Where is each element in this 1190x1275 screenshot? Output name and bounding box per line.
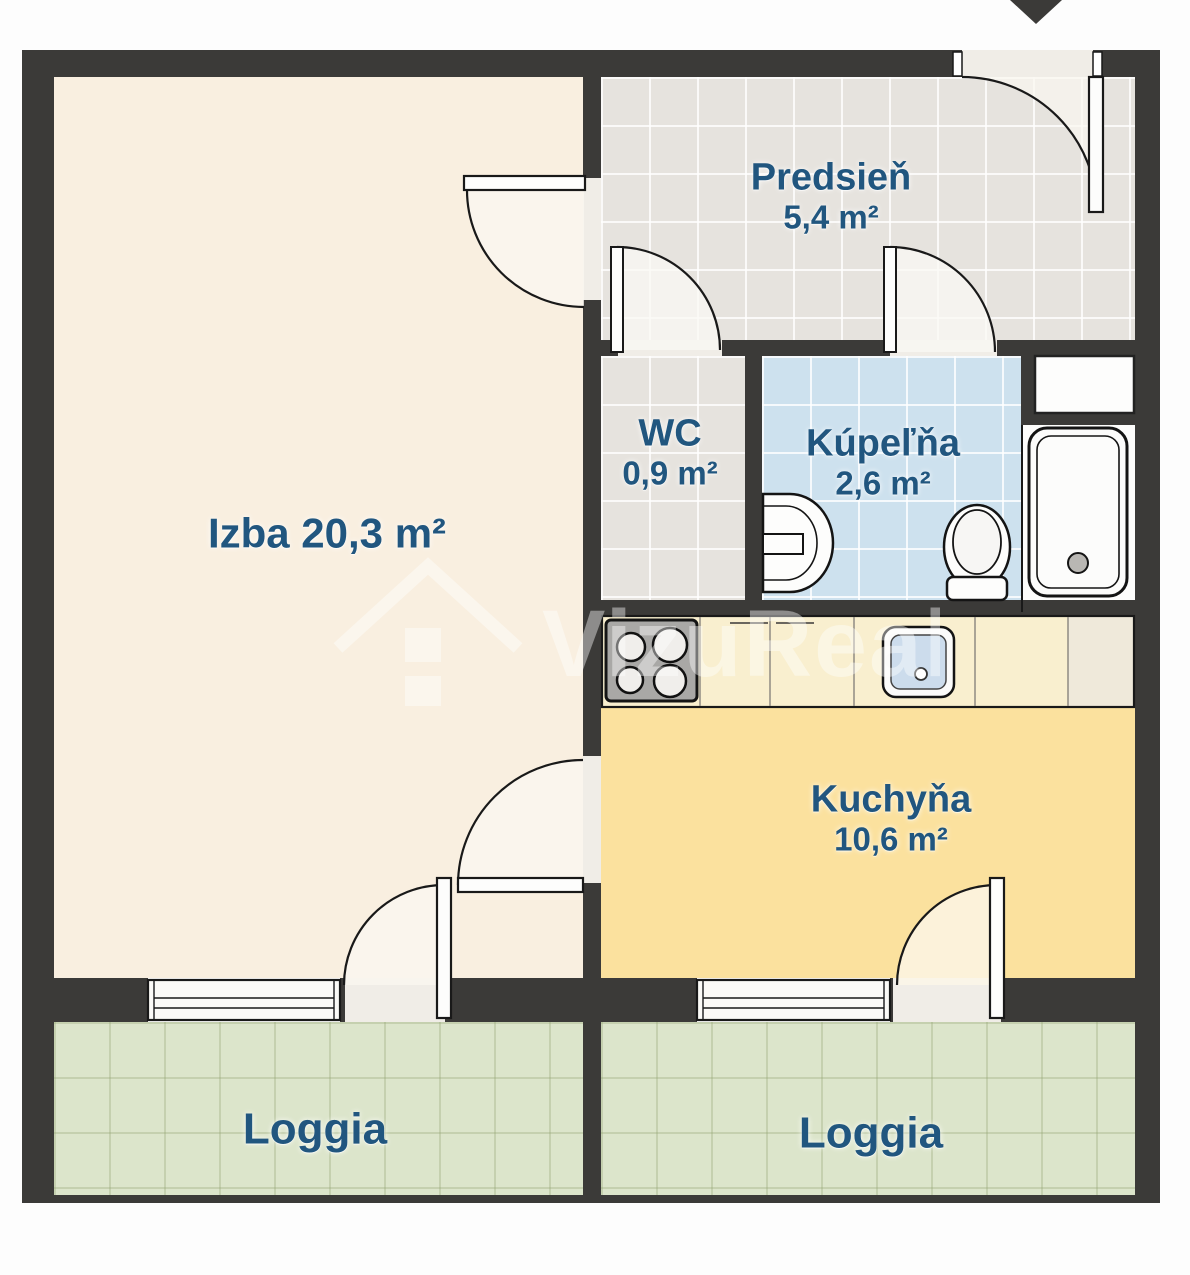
window-izba-loggia bbox=[148, 980, 340, 1020]
wall-under-shaft bbox=[1021, 413, 1135, 425]
kuchyna-name: Kuchyňa bbox=[811, 778, 971, 821]
wall-izba-hall-2 bbox=[583, 300, 601, 756]
wc-name: WC bbox=[622, 412, 717, 455]
wall-wc-bath bbox=[745, 356, 762, 600]
bathtub-nook bbox=[1023, 425, 1135, 612]
wall-hall-bottom-1 bbox=[601, 340, 618, 356]
utility-shaft bbox=[1035, 356, 1134, 413]
kitchen-counter-area bbox=[601, 615, 1135, 708]
loggia-right-door-opening bbox=[893, 978, 1001, 1022]
kuchyna-area: 10,6 m² bbox=[811, 821, 971, 858]
wall-top-left bbox=[22, 50, 962, 77]
loggia-front-rail bbox=[22, 1195, 1160, 1203]
kupelna-area: 2,6 m² bbox=[806, 465, 960, 502]
wall-bottom-6 bbox=[1001, 978, 1135, 1022]
wall-bottom-3 bbox=[445, 978, 583, 1022]
wall-izba-kitchen bbox=[583, 883, 601, 978]
label-predsien: Predsieň 5,4 m² bbox=[751, 156, 912, 236]
entrance-opening bbox=[962, 50, 1093, 77]
wall-izba-hall-1 bbox=[583, 77, 601, 178]
window-kitchen-loggia bbox=[697, 980, 890, 1020]
wall-left bbox=[22, 50, 54, 1203]
label-kupelna: Kúpeľňa 2,6 m² bbox=[806, 422, 960, 502]
izba-door-opening bbox=[583, 178, 601, 300]
entrance-arrow-icon bbox=[1010, 0, 1062, 24]
wall-right bbox=[1135, 50, 1160, 1203]
label-wc: WC 0,9 m² bbox=[622, 412, 717, 492]
predsien-name: Predsieň bbox=[751, 156, 912, 199]
wall-hall-bottom-2 bbox=[722, 340, 890, 356]
wall-bottom-1 bbox=[54, 978, 148, 1022]
label-izba: Izba 20,3 m² bbox=[208, 509, 446, 556]
label-kuchyna: Kuchyňa 10,6 m² bbox=[811, 778, 971, 858]
loggia-left-door-opening bbox=[345, 978, 445, 1022]
wall-loggia-divider bbox=[583, 978, 601, 1195]
bath-door-opening bbox=[890, 340, 997, 356]
floor-plan: VizuReal Predsieň 5,4 m² WC 0,9 m² Kúpeľ… bbox=[0, 0, 1190, 1275]
wc-door-opening bbox=[618, 340, 722, 356]
wall-hall-bottom-3 bbox=[997, 340, 1135, 356]
label-loggia-right: Loggia bbox=[799, 1108, 943, 1157]
wc-area: 0,9 m² bbox=[622, 455, 717, 492]
label-loggia-left: Loggia bbox=[243, 1104, 387, 1153]
predsien-area: 5,4 m² bbox=[751, 199, 912, 236]
wall-bottom-4 bbox=[601, 978, 697, 1022]
kitchen-door-opening bbox=[583, 756, 601, 883]
kupelna-name: Kúpeľňa bbox=[806, 422, 960, 465]
wall-bath-bottom bbox=[601, 600, 1135, 615]
